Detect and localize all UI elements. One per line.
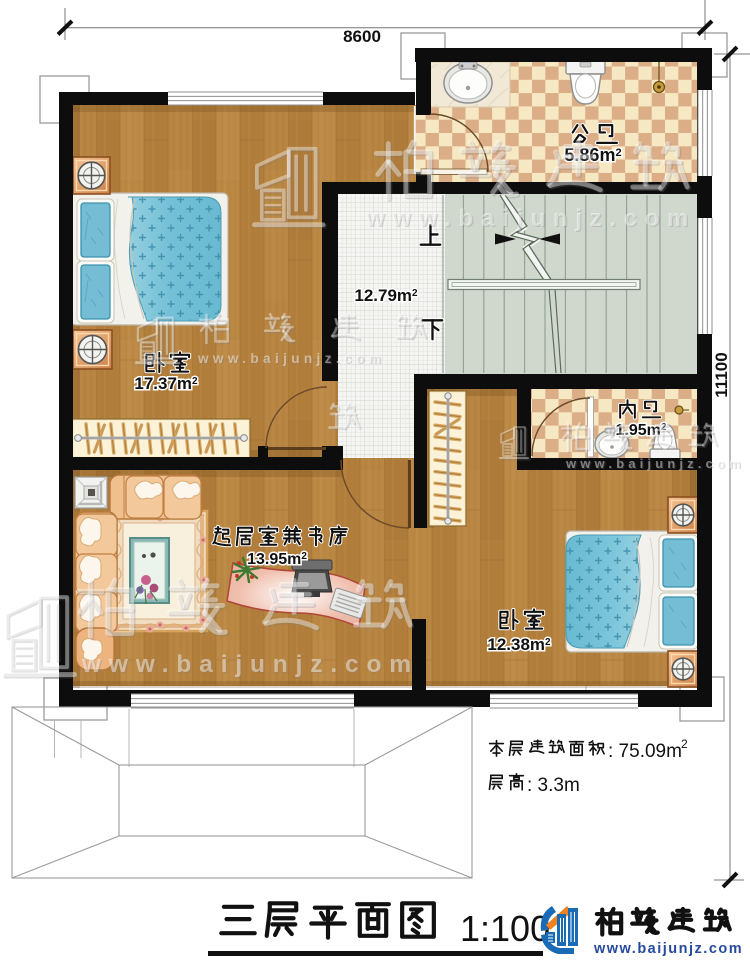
svg-text:12.79m2: 12.79m2	[354, 286, 418, 305]
svg-text:www.baijunjz.com: www.baijunjz.com	[81, 651, 419, 678]
svg-text:2: 2	[681, 737, 688, 751]
svg-text:www.baijunjz.com: www.baijunjz.com	[197, 351, 385, 366]
svg-text:: 75.09m: : 75.09m	[608, 741, 682, 762]
svg-text:12.38m2: 12.38m2	[487, 635, 551, 654]
svg-text:www.baijunjz.com: www.baijunjz.com	[365, 205, 696, 232]
svg-text:11100: 11100	[712, 352, 731, 397]
svg-text:www.baijunjz.com: www.baijunjz.com	[593, 941, 743, 957]
svg-text:17.37m2: 17.37m2	[134, 374, 198, 393]
svg-text:www.baijunjz.com: www.baijunjz.com	[565, 456, 745, 471]
svg-text:8600: 8600	[343, 27, 381, 46]
svg-text:: 3.3m: : 3.3m	[527, 775, 580, 796]
svg-text:1:100: 1:100	[460, 908, 550, 949]
svg-text:13.95m2: 13.95m2	[247, 551, 307, 568]
